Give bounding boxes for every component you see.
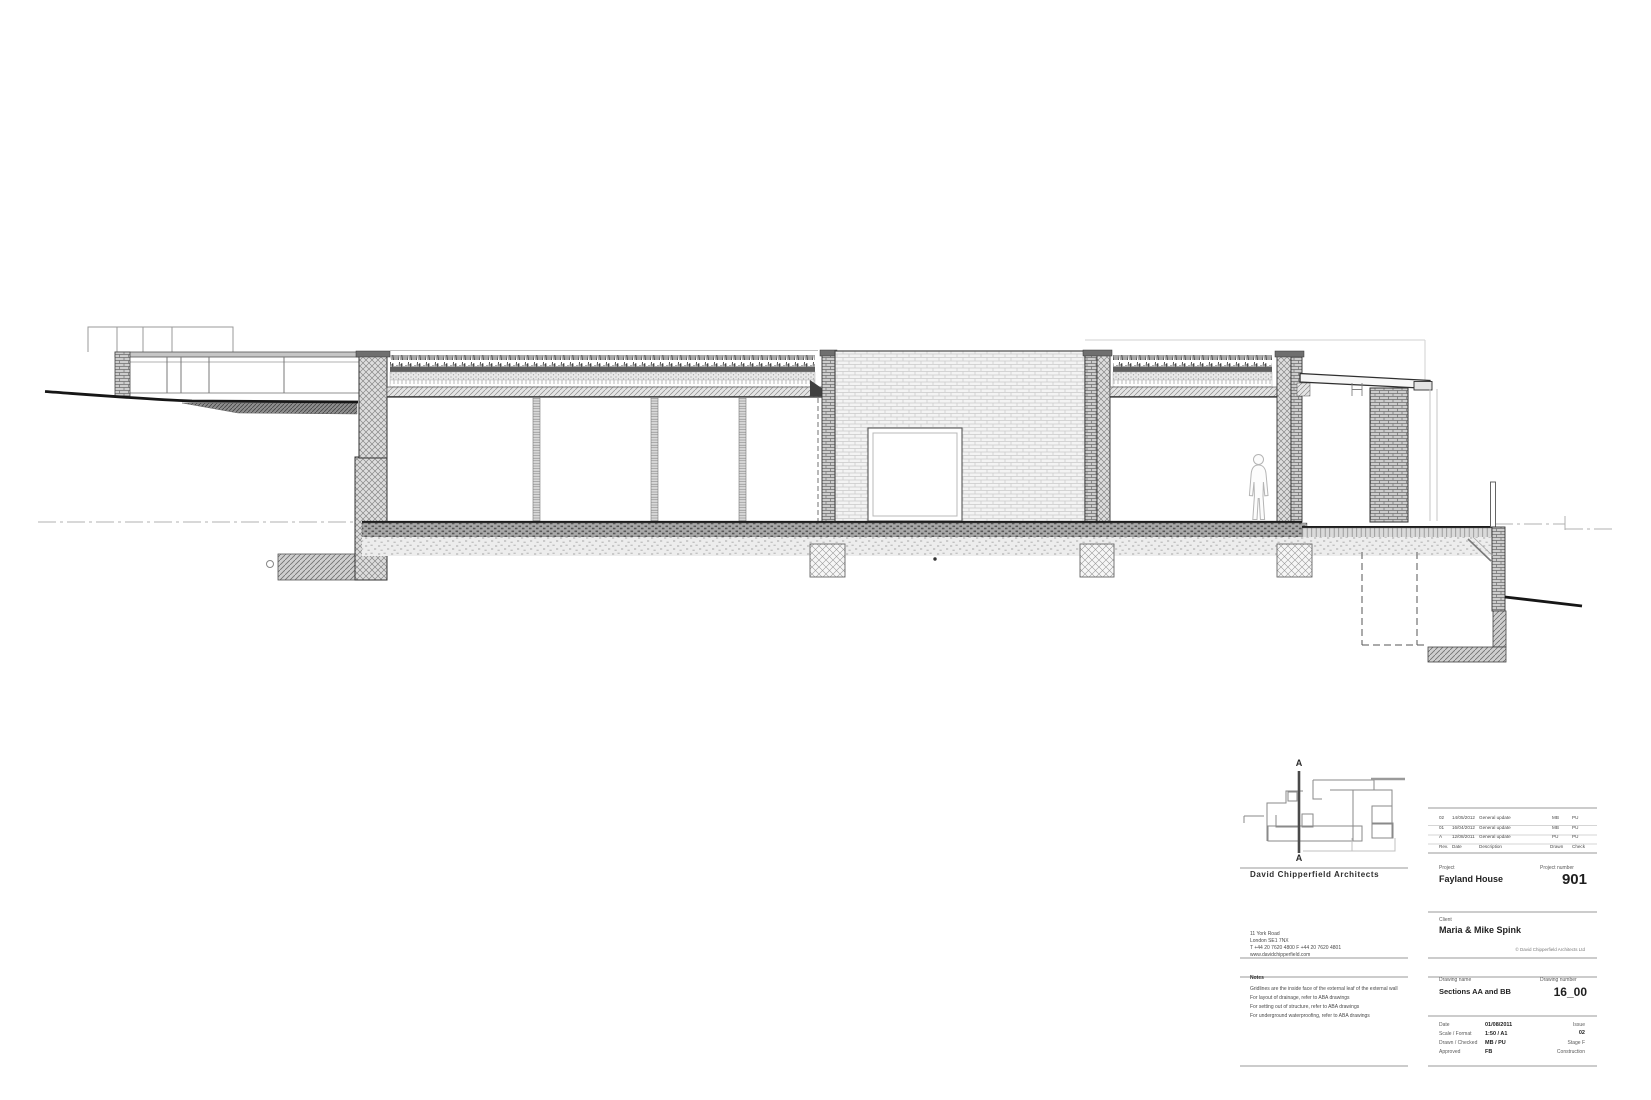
project-value: Fayland House bbox=[1439, 875, 1503, 884]
human-figure bbox=[1249, 455, 1268, 520]
revision-date: 12/08/2011 bbox=[1452, 835, 1475, 840]
revision-description: General update bbox=[1479, 816, 1511, 821]
key-plan bbox=[1244, 771, 1405, 853]
revision-drawn: PU bbox=[1552, 835, 1558, 840]
hedge-outline bbox=[88, 327, 233, 352]
approved-value: FB bbox=[1485, 1050, 1492, 1056]
revision-date: 16/04/2012 bbox=[1452, 826, 1475, 831]
section-marker-top: A bbox=[1293, 759, 1305, 768]
revision-rev: 01 bbox=[1439, 826, 1444, 831]
revision-drawn: MB bbox=[1552, 826, 1559, 831]
issue-label: Issue bbox=[1538, 1023, 1585, 1028]
architect-address: 11 York Road London SE1 7NX T +44 20 762… bbox=[1250, 931, 1341, 959]
notes-body: Gridlines are the inside face of the ext… bbox=[1250, 985, 1398, 1021]
drawing-name-value: Sections AA and BB bbox=[1439, 988, 1511, 996]
drawing-name-label: Drawing name bbox=[1439, 978, 1471, 983]
veranda bbox=[1297, 374, 1437, 523]
revision-header-check: Check bbox=[1572, 845, 1585, 850]
date-label: Date bbox=[1439, 1023, 1450, 1028]
green-roof-right bbox=[1110, 355, 1277, 397]
green-roof-left bbox=[387, 351, 833, 398]
central-brick-elevation bbox=[835, 351, 1085, 527]
revision-header-drawn: Drawn bbox=[1550, 845, 1563, 850]
revision-header-date: Date bbox=[1452, 845, 1462, 850]
project-number-value: 901 bbox=[1540, 872, 1587, 887]
architect-name: David Chipperfield Architects bbox=[1250, 871, 1379, 879]
notes-title: Notes bbox=[1250, 976, 1264, 981]
revision-check: PU bbox=[1572, 816, 1578, 821]
revision-header-description: Description bbox=[1479, 845, 1502, 850]
window-opening bbox=[868, 428, 962, 521]
revision-check: PU bbox=[1572, 835, 1578, 840]
revision-date: 14/05/2012 bbox=[1452, 816, 1475, 821]
revision-check: PU bbox=[1572, 826, 1578, 831]
drawing-number-value: 16_00 bbox=[1540, 986, 1587, 998]
drawing-number-label: Drawing number bbox=[1540, 978, 1577, 983]
section-marker-bottom: A bbox=[1293, 854, 1305, 863]
client-value: Maria & Mike Spink bbox=[1439, 926, 1521, 935]
brick-pier bbox=[1370, 388, 1408, 522]
canopy-elevation bbox=[115, 352, 362, 396]
interior-columns bbox=[533, 398, 746, 522]
copyright-note: © David Chipperfield Architects Ltd bbox=[1460, 948, 1585, 953]
hidden-outline bbox=[1362, 552, 1428, 645]
section-linework bbox=[0, 0, 1651, 1100]
drawing-sheet: A A David Chipperfield Architects 11 Yor… bbox=[0, 0, 1651, 1100]
date-value: 01/08/2011 bbox=[1485, 1023, 1512, 1029]
drawn-checked-label: Drawn / Checked bbox=[1439, 1041, 1477, 1046]
ground-left bbox=[45, 392, 358, 415]
cut-wall-2 bbox=[818, 350, 837, 522]
revision-drawn: MB bbox=[1552, 816, 1559, 821]
revision-rev: 02 bbox=[1439, 816, 1444, 821]
approved-label: Approved bbox=[1439, 1050, 1460, 1055]
revision-description: General update bbox=[1479, 835, 1511, 840]
scale-value: 1:50 / A1 bbox=[1485, 1032, 1507, 1038]
issue-value: 02 bbox=[1538, 1031, 1585, 1037]
project-label: Project bbox=[1439, 866, 1455, 871]
scale-label: Scale / Format bbox=[1439, 1032, 1472, 1037]
cut-wall-3 bbox=[1083, 350, 1112, 522]
revision-rev: A bbox=[1439, 835, 1442, 840]
client-label: Client bbox=[1439, 918, 1452, 923]
revision-header-rev: Rev. bbox=[1439, 845, 1448, 850]
floor-structure bbox=[362, 522, 1495, 577]
stage-value: Stage F bbox=[1538, 1041, 1585, 1046]
drawn-checked-value: MB / PU bbox=[1485, 1041, 1506, 1047]
revision-description: General update bbox=[1479, 826, 1511, 831]
status-value: Construction bbox=[1538, 1050, 1585, 1055]
